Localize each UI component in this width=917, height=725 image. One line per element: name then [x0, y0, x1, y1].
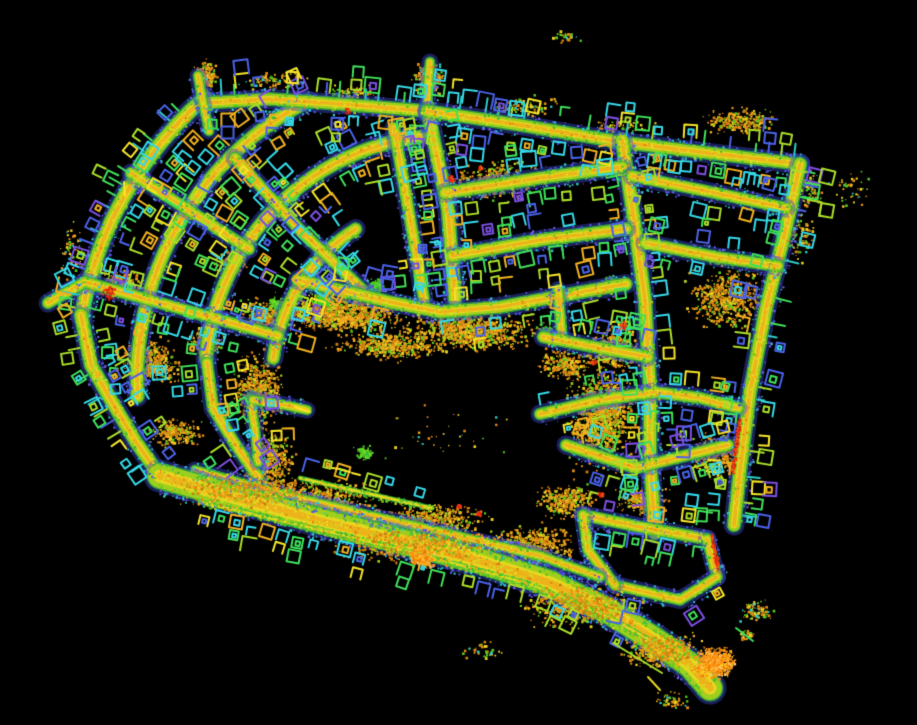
point-cloud-canvas: [0, 0, 917, 725]
lidar-map-viewport: [0, 0, 917, 725]
